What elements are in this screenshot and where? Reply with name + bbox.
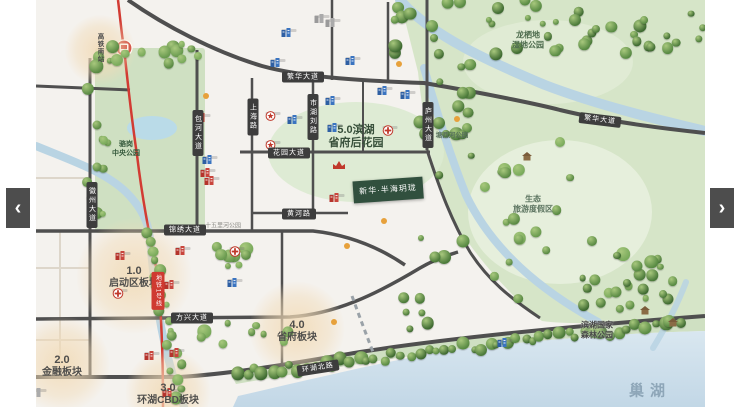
zone-label-2: 2.0 金融板块 xyxy=(42,354,82,378)
tree-icon xyxy=(468,152,475,159)
eco-resort-label: 生态 旅游度假区 xyxy=(513,195,553,216)
tree-icon xyxy=(539,21,546,28)
central-park-label: 骆岗 中央公园 xyxy=(112,140,140,158)
tree-icon xyxy=(552,326,565,339)
road-label-shihu: 市湖刘路 xyxy=(308,94,319,140)
tangxihe-park-label: 塘西河公园 xyxy=(436,132,469,140)
tree-icon xyxy=(398,292,410,304)
shiwuli-park-label: 十五里河公园 xyxy=(205,221,241,230)
tree-icon xyxy=(662,42,674,54)
tree-icon xyxy=(179,41,186,48)
tree-icon xyxy=(403,308,410,315)
tree-icon xyxy=(499,167,511,179)
tree-icon xyxy=(462,107,473,118)
tree-icon xyxy=(659,290,667,298)
next-chevron-icon: › xyxy=(719,198,726,218)
tree-icon xyxy=(457,337,470,350)
tree-icon xyxy=(215,249,227,261)
lake-chaohu-label: 巢湖 xyxy=(629,380,671,401)
tree-icon xyxy=(566,174,574,182)
tree-icon xyxy=(663,315,675,327)
tree-icon xyxy=(579,275,586,282)
road-label-fanhua: 繁华大道 xyxy=(282,72,324,83)
tree-icon xyxy=(640,16,648,24)
next-button[interactable]: › xyxy=(710,188,734,228)
tree-icon xyxy=(164,58,175,69)
tree-icon xyxy=(137,48,146,57)
tree-icon xyxy=(343,356,354,367)
tree-icon xyxy=(224,320,231,327)
tree-icon xyxy=(441,0,454,9)
road-label-shanghai: 上海路 xyxy=(248,99,259,136)
area-map-image: 繁华大道 繁华大道 花园大道 黄河路 锦绣大道 方兴大道 环湖北路 徽州大道 包… xyxy=(36,0,705,407)
metro-line-tag: 地铁1号线 xyxy=(152,272,165,310)
prev-button[interactable]: ‹ xyxy=(6,188,30,228)
tree-icon xyxy=(506,259,513,266)
road-label-baohe: 包河大道 xyxy=(193,110,204,156)
road-label-fangxing: 方兴大道 xyxy=(171,313,213,324)
tree-icon xyxy=(93,162,102,171)
tree-icon xyxy=(173,349,183,359)
tree-icon xyxy=(403,7,416,20)
road-label-huayuan: 花园大道 xyxy=(268,148,310,159)
tree-icon xyxy=(688,10,695,17)
tree-icon xyxy=(456,235,469,248)
tree-icon xyxy=(578,299,590,311)
zone-label-4: 4.0 省府板块 xyxy=(277,319,317,343)
tree-icon xyxy=(260,331,267,338)
zone-label-5: 5.0滨湖 省府后花园 xyxy=(329,124,384,150)
tree-icon xyxy=(510,333,520,343)
road-label-huizhou: 徽州大道 xyxy=(87,182,98,228)
longqidi-park-label: 龙栖地 湿地公园 xyxy=(512,31,544,52)
tree-icon xyxy=(513,294,523,304)
tree-icon xyxy=(668,276,678,286)
tree-icon xyxy=(433,117,445,129)
tree-icon xyxy=(570,333,579,342)
prev-chevron-icon: ‹ xyxy=(15,198,22,218)
rail-station-label: 高铁南站 xyxy=(94,33,104,63)
tree-icon xyxy=(579,39,591,51)
tree-icon xyxy=(93,120,102,129)
map-base-layers xyxy=(36,0,705,407)
tree-icon xyxy=(542,247,550,255)
tree-icon xyxy=(552,206,562,216)
tree-icon xyxy=(595,298,606,309)
tree-icon xyxy=(386,347,397,358)
road-label-jinxiu: 锦绣大道 xyxy=(164,225,206,236)
tree-icon xyxy=(647,270,659,282)
tree-icon xyxy=(248,328,256,336)
image-carousel: ‹ xyxy=(0,0,740,418)
tree-icon xyxy=(555,137,565,147)
zone-label-3: 3.0 环湖CBD板块 xyxy=(137,382,199,406)
road-label-luzhou: 庐州大道 xyxy=(423,102,434,148)
tree-icon xyxy=(643,295,650,302)
tree-icon xyxy=(391,15,400,24)
tree-icon xyxy=(492,2,504,14)
tree-icon xyxy=(177,359,187,369)
tree-icon xyxy=(197,333,206,342)
tree-icon xyxy=(106,40,120,54)
tree-icon xyxy=(613,252,621,260)
tree-icon xyxy=(421,317,434,330)
tree-icon xyxy=(638,284,649,295)
tree-icon xyxy=(543,330,553,340)
tree-icon xyxy=(699,24,705,32)
tree-icon xyxy=(426,20,438,32)
tree-icon xyxy=(158,46,171,59)
tree-icon xyxy=(435,171,443,179)
tree-icon xyxy=(448,345,456,353)
tree-icon xyxy=(151,256,159,264)
tree-icon xyxy=(430,34,438,42)
tree-icon xyxy=(464,59,476,71)
tree-icon xyxy=(396,351,405,360)
road-label-huanghe: 黄河路 xyxy=(282,209,316,220)
forest-park-label: 滨湖国家 森林公园 xyxy=(581,321,613,342)
